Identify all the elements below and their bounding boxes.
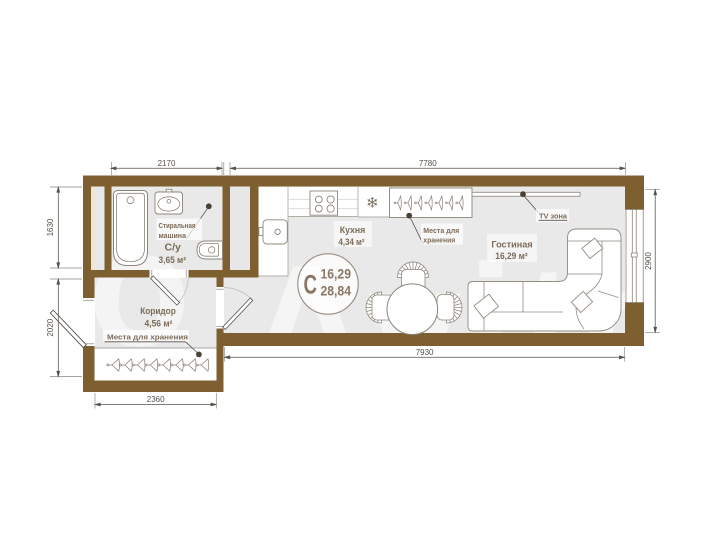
svg-text:16,29: 16,29 xyxy=(321,267,352,282)
svg-text:Места для хранения: Места для хранения xyxy=(107,333,188,341)
svg-text:28,84: 28,84 xyxy=(321,284,352,299)
svg-text:2360: 2360 xyxy=(147,395,165,404)
svg-text:4,34 м²: 4,34 м² xyxy=(339,237,365,247)
svg-text:2170: 2170 xyxy=(158,159,176,168)
svg-text:7930: 7930 xyxy=(416,348,434,357)
svg-text:Кухня: Кухня xyxy=(340,225,366,235)
svg-text:1630: 1630 xyxy=(46,218,55,236)
svg-text:Коридор: Коридор xyxy=(140,306,176,316)
svg-text:Гостиная: Гостиная xyxy=(491,240,532,250)
svg-text:Места для: Места для xyxy=(423,227,459,235)
svg-text:4,56 м²: 4,56 м² xyxy=(145,319,173,329)
svg-text:2900: 2900 xyxy=(644,252,653,270)
svg-text:16,29 м²: 16,29 м² xyxy=(495,251,527,261)
svg-text:С: С xyxy=(304,270,318,300)
svg-text:2020: 2020 xyxy=(46,318,55,336)
svg-text:машина: машина xyxy=(159,232,187,240)
svg-text:Стиральная: Стиральная xyxy=(159,222,196,230)
svg-text:С/у: С/у xyxy=(165,242,182,254)
svg-text:хранения: хранения xyxy=(423,237,455,245)
svg-text:7780: 7780 xyxy=(419,159,437,168)
svg-text:TV зона: TV зона xyxy=(539,212,568,221)
svg-text:3,65 м²: 3,65 м² xyxy=(159,255,187,265)
